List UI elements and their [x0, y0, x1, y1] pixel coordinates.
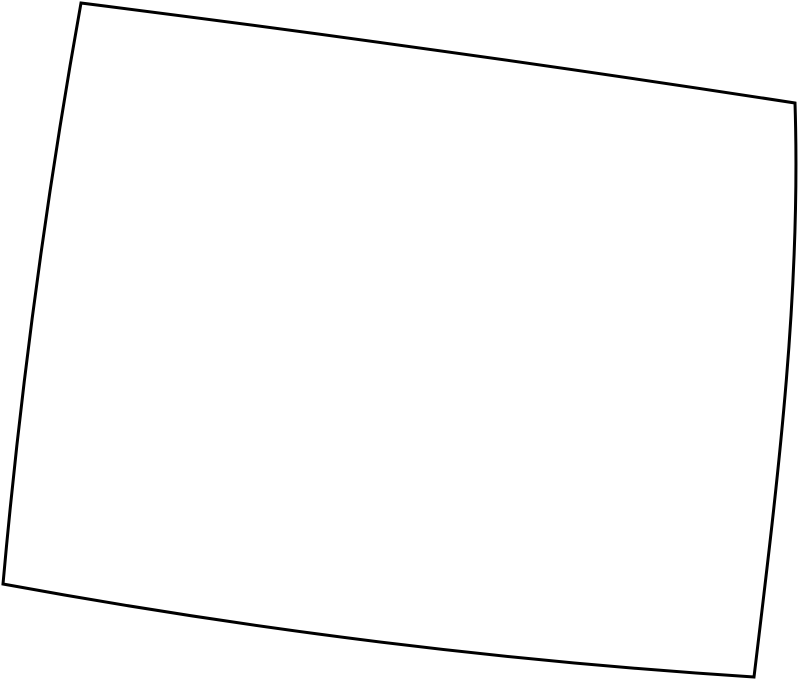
page-canvas	[0, 0, 800, 683]
colorado-state-outline	[3, 3, 796, 677]
state-map	[0, 0, 800, 683]
